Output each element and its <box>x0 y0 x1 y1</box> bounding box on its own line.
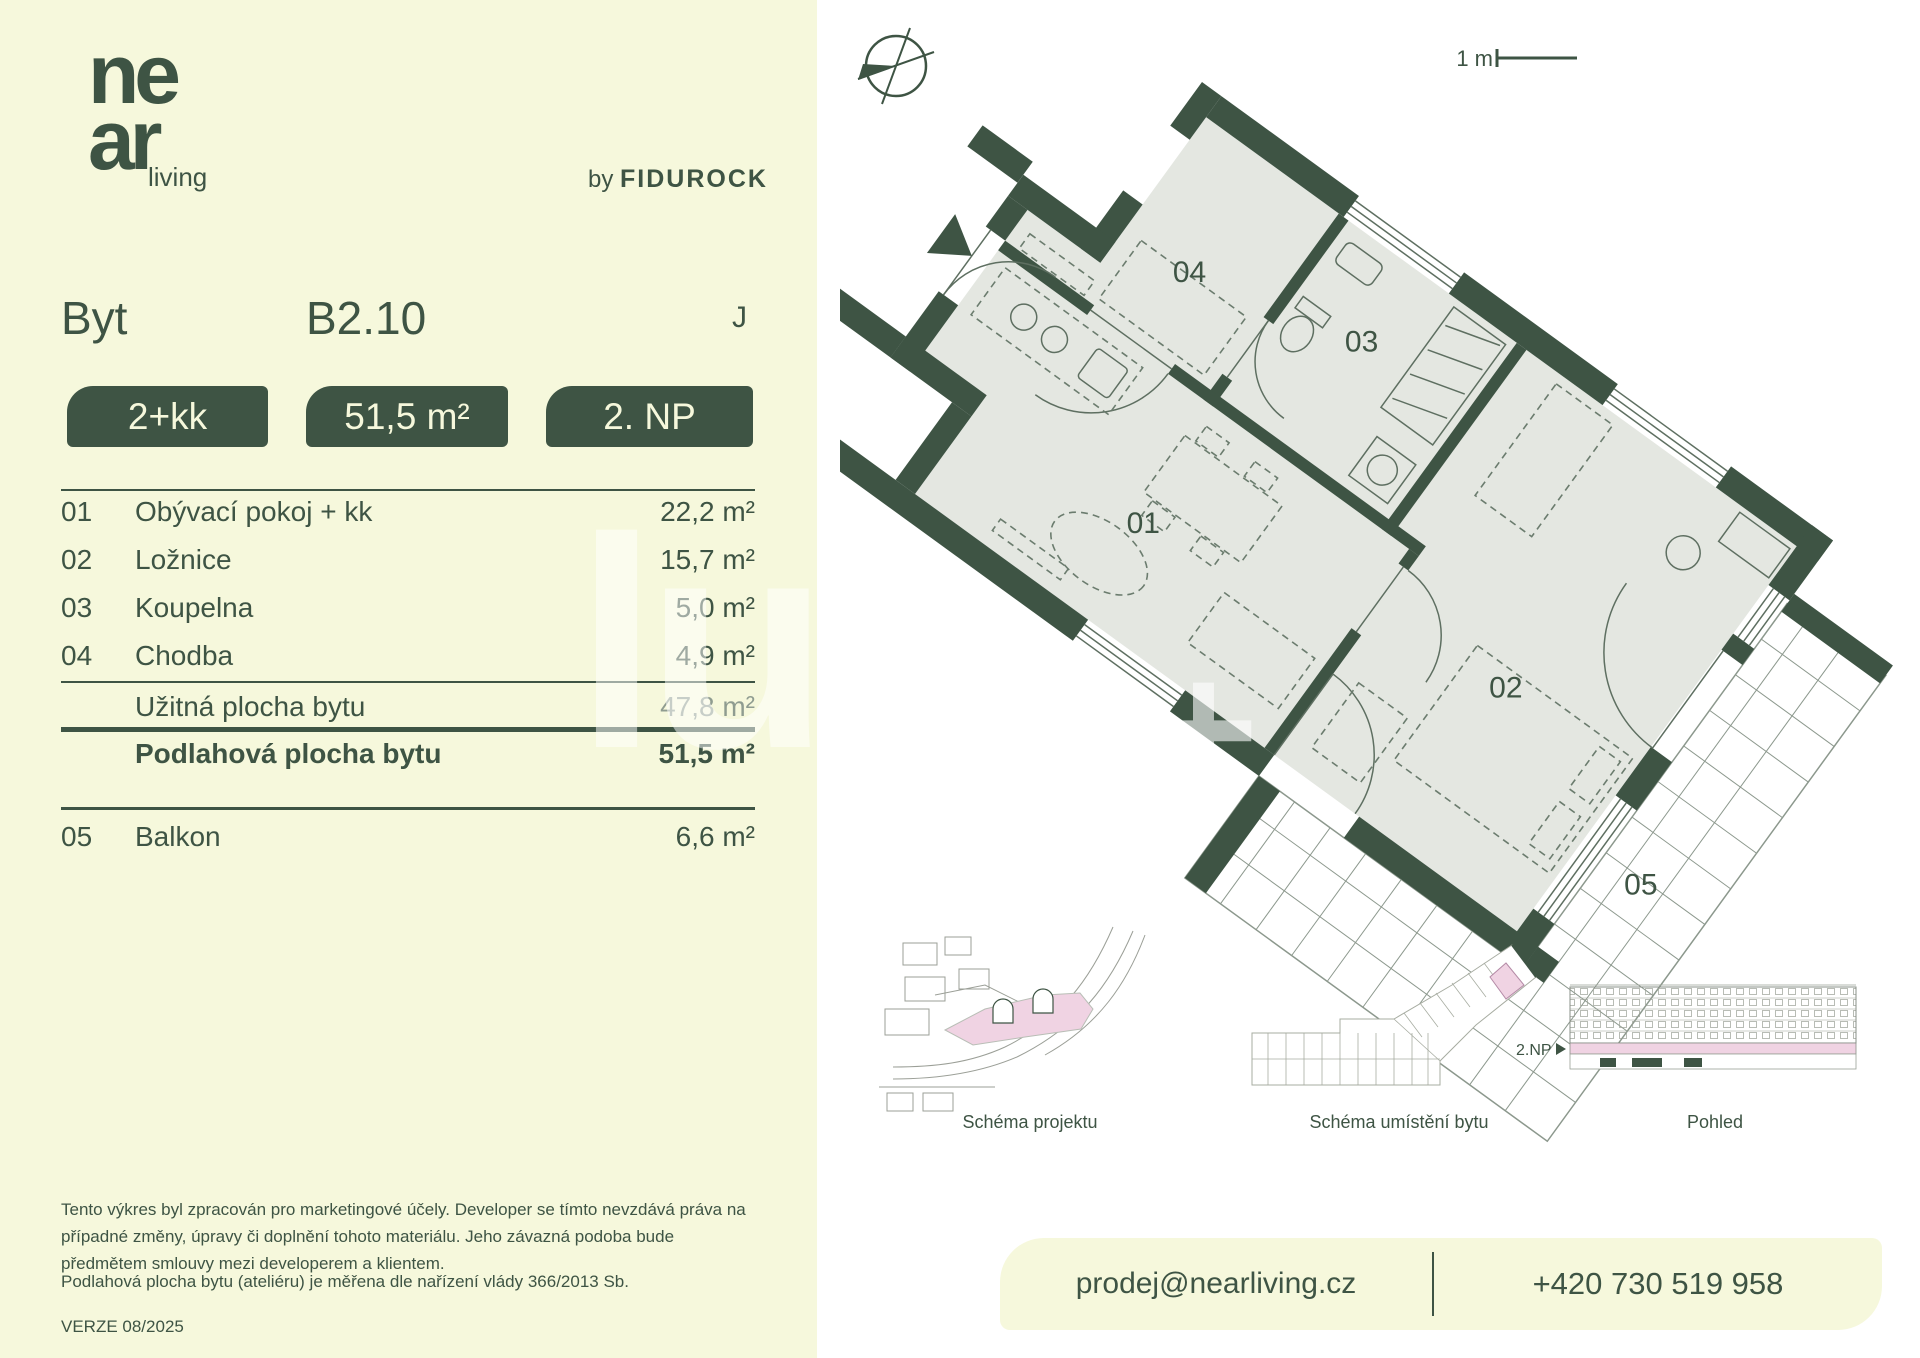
room-name: Koupelna <box>135 592 676 624</box>
elevation-caption: Pohled <box>1560 1112 1870 1133</box>
table-divider <box>61 489 755 491</box>
near-living-logo: ne ar <box>88 42 176 173</box>
entry-arrow <box>927 214 986 275</box>
contact-email[interactable]: prodej@nearliving.cz <box>1000 1267 1432 1301</box>
floor-marker-arrow-icon <box>1556 1043 1566 1055</box>
scale-bar: 1 m <box>1456 46 1577 71</box>
room-area: 22,2 m² <box>660 496 755 528</box>
room-label-bedroom: 02 <box>1489 671 1522 704</box>
badge-area: 51,5 m² <box>306 386 508 447</box>
total-value: 51,5 m² <box>659 738 756 770</box>
project-highlight-area <box>945 993 1093 1045</box>
byline: by FIDUROCK <box>588 165 768 194</box>
room-name: Ložnice <box>135 544 660 576</box>
total-row: Podlahová plocha bytu 51,5 m² <box>61 738 755 770</box>
room-number: 05 <box>61 821 135 853</box>
room-name: Balkon <box>135 821 676 853</box>
table-row: 02 Ložnice 15,7 m² <box>61 544 755 576</box>
table-divider-strong <box>61 727 755 732</box>
room-name: Obývací pokoj + kk <box>135 496 660 528</box>
table-row: 04 Chodba 4,9 m² <box>61 640 755 672</box>
room-label-living: 01 <box>1127 507 1160 540</box>
subtotal-value: 47,8 m² <box>660 691 755 723</box>
unit-location-caption: Schéma umístění bytu <box>1244 1112 1554 1133</box>
scale-label: 1 m <box>1456 46 1493 71</box>
room-number: 03 <box>61 592 135 624</box>
disclaimer-text: Tento výkres byl zpracován pro marketing… <box>61 1196 761 1277</box>
room-area: 15,7 m² <box>660 544 755 576</box>
room-area: 5,0 m² <box>676 592 755 624</box>
room-number: 02 <box>61 544 135 576</box>
page: ne ar living by FIDUROCK Byt B2.10 J 2+k… <box>0 0 1920 1358</box>
info-panel: ne ar living by FIDUROCK Byt B2.10 J 2+k… <box>0 0 817 1358</box>
floor-highlight-band <box>1570 1043 1856 1054</box>
room-area: 4,9 m² <box>676 640 755 672</box>
table-row: 01 Obývací pokoj + kk 22,2 m² <box>61 496 755 528</box>
contact-bar: prodej@nearliving.cz +420 730 519 958 <box>1000 1238 1882 1330</box>
room-number: 01 <box>61 496 135 528</box>
site-plan-caption: Schéma projektu <box>875 1112 1185 1133</box>
room-name: Chodba <box>135 640 676 672</box>
version-label: VERZE 08/2025 <box>61 1317 761 1337</box>
badge-layout: 2+kk <box>67 386 268 447</box>
subtotal-row: Užitná plocha bytu 47,8 m² <box>61 691 755 723</box>
elevation-schematic: 2.NP <box>1500 975 1880 1090</box>
room-number: 04 <box>61 640 135 672</box>
room-label-bathroom: 03 <box>1345 325 1378 358</box>
measurement-note: Podlahová plocha bytu (ateliéru) je měře… <box>61 1272 761 1292</box>
unit-number: B2.10 <box>306 291 426 345</box>
balcony-row: 05 Balkon 6,6 m² <box>61 821 755 853</box>
logo-suffix: living <box>148 162 207 193</box>
byline-prefix: by <box>588 166 613 193</box>
byline-brand: FIDUROCK <box>620 165 768 193</box>
total-label: Podlahová plocha bytu <box>135 738 659 770</box>
room-area: 6,6 m² <box>676 821 755 853</box>
table-divider <box>61 807 755 810</box>
contact-phone[interactable]: +420 730 519 958 <box>1434 1266 1882 1302</box>
site-plan-schematic <box>875 925 1185 1115</box>
table-divider <box>61 681 755 683</box>
unit-type-label: Byt <box>61 291 127 345</box>
room-label-hall: 04 <box>1173 256 1206 289</box>
compass-icon <box>858 28 934 104</box>
table-row: 03 Koupelna 5,0 m² <box>61 592 755 624</box>
subtotal-label: Užitná plocha bytu <box>135 691 660 723</box>
badge-floor: 2. NP <box>546 386 753 447</box>
floor-marker-label: 2.NP <box>1516 1042 1552 1059</box>
orientation-label: J <box>732 301 747 335</box>
room-label-balcony: 05 <box>1624 868 1657 901</box>
